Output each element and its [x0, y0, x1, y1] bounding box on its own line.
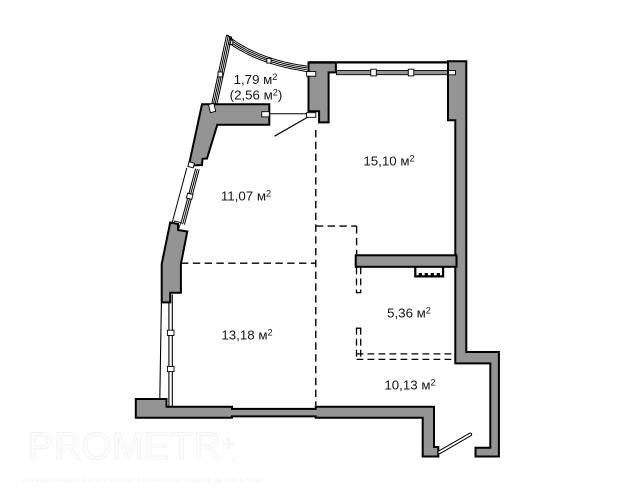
- svg-text:1,79 м2: 1,79 м2: [234, 72, 278, 87]
- svg-text:10,13 м2: 10,13 м2: [384, 377, 435, 392]
- svg-text:5,36 м2: 5,36 м2: [387, 305, 431, 320]
- svg-text:PROMETR: PROMETR: [28, 426, 222, 468]
- svg-text:,: ,: [232, 448, 236, 465]
- svg-text:15,10 м2: 15,10 м2: [363, 153, 414, 168]
- svg-text:11,07 м2: 11,07 м2: [221, 188, 271, 203]
- svg-text:вся информация о новостройках: вся информация о новостройках и планиров…: [22, 476, 263, 484]
- svg-text:13,18 м2: 13,18 м2: [221, 327, 272, 342]
- svg-text:(2,56 м2): (2,56 м2): [230, 87, 283, 102]
